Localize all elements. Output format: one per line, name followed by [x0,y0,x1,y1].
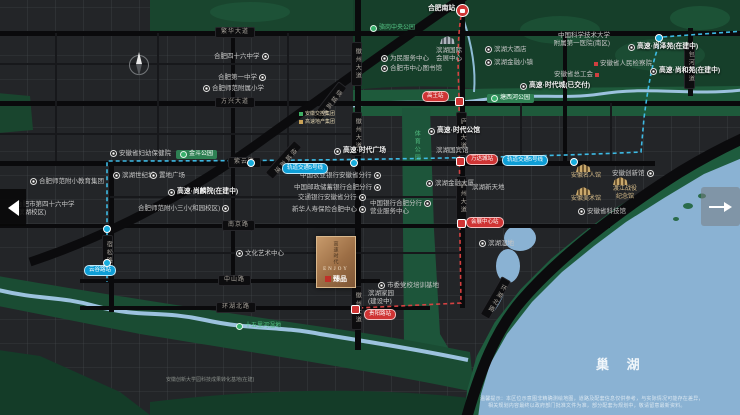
metro-station-icon [103,225,111,233]
poi-normal-primary-edu-group: 合肥师范附小教育集团 [30,178,104,186]
poi-psbc-bank-hefei-branch: 中国邮政储蓄银行合肥分行 [294,184,381,192]
road-huanhu-north-road: 环湖北路 [216,302,256,313]
poi-dujiang-campaign-memorial: 渡江战役纪念馆 [608,186,642,201]
poi-binhu-hotel: 滨湖大酒店 [485,46,527,54]
hefei-south-railway-icon [456,4,469,17]
poi-maternity-hospital: 安徽省妇幼保健院 [110,150,171,158]
location-map: 高速时代 ENJOY 臻品 温馨提示：本区位示意图非精确测绘地图，道路及配套信息… [0,0,740,415]
park-tangxihe-park: 塘西河公园 [487,94,534,103]
poi-provincial-trade-union: 安徽省总工会 [554,71,599,79]
poi-xinhua-insurance-center: 新华人寿保险合肥中心 [292,206,366,214]
metro-station-icon [247,159,255,167]
poi-hefei-no1-high-school: 合肥第一中学 [218,74,266,82]
poi-hefei-south-station: 合肥南站 [428,5,455,13]
road-ziyun-road: 紫云路 [228,157,261,168]
poi-dot-icon [334,148,341,155]
poi-dot-icon [520,83,527,90]
poi-normal-affiliated-primary: 合肥师范附属小学 [203,85,264,93]
rail-station-icon [455,97,464,106]
poi-service-center: 为民服务中心 [381,55,429,63]
park-dot-icon [180,151,187,158]
park-sports-park: 体育公园 [412,130,419,162]
poi-dot-icon [424,200,431,207]
poi-dot-icon [262,53,269,60]
road-fanhua-avenue: 繁华大道 [215,27,255,38]
plaque-en-text: ENJOY [323,267,349,272]
metro-station-wandacheng: 万达城站 [466,154,498,165]
poi-dot-icon [428,128,435,135]
poi-dot-icon [647,170,654,177]
poi-boc-service-center: 营业服务中心 [370,208,409,216]
plaque-sub-text: 臻品 [325,274,347,284]
poi-dot-icon [374,172,381,179]
poi-dot-icon [374,184,381,191]
red-seal-icon [325,276,331,282]
metro-station-gaowang: 高王站 [422,91,449,102]
plaque-cn-text: 高速时代 [333,241,340,265]
poi-dot-icon [222,205,229,212]
red-square-icon [595,73,599,77]
metro-station-guiyanglu: 贵阳路站 [364,309,396,320]
left-arrow-icon [8,200,19,216]
road-fangxing-avenue: 方兴大道 [215,97,255,108]
poi-dot-icon [110,150,117,157]
road-zhongshan-road: 中山路 [218,275,251,286]
logo-anhui-jiaokong-group: 安徽交控集团 [299,111,335,117]
poi-dot-icon [628,44,635,51]
poi-dot-icon [381,65,388,72]
red-square-icon [594,62,598,66]
poi-dot-icon [150,172,157,179]
poi-dot-icon [299,112,303,116]
poi-dot-icon [426,180,433,187]
poi-dot-icon [485,46,492,53]
poi-dot-icon [485,59,492,66]
poi-dot-icon [578,208,585,215]
poi-dot-icon [168,189,175,196]
poi-anhui-science-museum: 安徽省科技馆 [578,208,626,216]
park-shiwulihe-wetland: 十五里河湿地 [236,323,281,330]
poi-city-library: 合肥市中心图书馆 [381,65,442,73]
poi-anhui-art-museum: 安徽美术馆 [571,196,601,203]
poi-culture-art-center: 文化艺术中心 [236,250,284,258]
poi-hefei-no46-middle-school: 合肥四十六中学 [214,53,269,61]
poi-finance-town: 滨湖金融小镇 [485,59,533,67]
poi-gaosu-shangze-court: 高速·尚泽苑(在建中) [628,43,698,51]
rail-station-icon [351,305,360,314]
prev-map-button[interactable] [0,189,26,226]
metro-line5-badge-2: 轨道交通5号线 [502,155,548,166]
poi-dot-icon [650,68,657,75]
poi-dot-icon [259,74,266,81]
poi-binhu-wetland: 滨湖湿地 [479,240,514,248]
poi-gaosu-times-mansion: 高速·时代公馆 [428,127,480,135]
park-luogang-central-park: 骆岗中央公园 [370,25,415,32]
poi-dot-icon [299,120,303,124]
poi-binhu-xintiandi: 滨湖新天地 [472,184,505,192]
poi-dot-icon [113,172,120,179]
poi-gaosu-shanghe-court: 高速·尚和苑(在建中) [650,67,720,75]
park-jindou-park: 金斗公园 [176,150,217,159]
poi-dot-icon [236,250,243,257]
metro-station-icon [103,259,111,267]
park-dot-icon [236,323,243,330]
poi-gaosu-times-plaza: 高速·时代广场 [334,147,386,155]
metro-line5-badge-1: 轨道交通5号线 [282,163,328,174]
road-nanjing-road: 南京路 [222,220,255,231]
right-arrowhead-icon [724,202,732,212]
poi-zhidi-plaza: 置地广场 [150,172,185,180]
lake-title-chaohu: 巢 湖 [596,357,647,373]
metro-station-icon [655,34,663,42]
park-dot-icon [491,95,498,102]
metro-station-huizhanzhongxin: 会展中心站 [466,217,504,228]
rail-station-icon [456,157,465,166]
poi-anhui-innovation-hall: 安徽创新馆 [612,170,654,178]
poi-dot-icon [203,85,210,92]
poi-dot-icon [378,282,385,289]
poi-binhu-finance-tower: 滨湖金融大厦 [426,180,474,188]
poi-tech-transfer-base: 安徽创新大学园科技成果转化基地(在建) [166,377,254,383]
poi-bocom-bank-anhui-branch: 交通银行安徽省分行 [298,194,366,202]
poi-binhu-century-city: 滨湖世纪城 [113,172,155,180]
poi-state-guest-hotel: 滨湖国宾馆 [436,147,469,155]
poi-gaosu-shanglin-court: 高速·尚麟院(在建中) [168,188,238,196]
poi-dot-icon [30,178,37,185]
poi-boc-bank-hefei-branch: 中国银行合肥分行 [370,200,431,208]
metro-station-yungulu: 云谷路站 [84,265,116,276]
compass-icon [128,50,150,80]
poi-party-school: 市委党校培训基地 [378,282,439,290]
metro-station-icon [570,158,578,166]
poi-dot-icon [359,206,366,213]
poi-provincial-procuratorate: 安徽省人民检察院 [594,60,652,68]
right-arrow-icon [709,206,725,208]
disclaimer-line-1: 温馨提示：本区位示意图非精确测绘地图，道路及配套信息仅供参考，与实际情况可能存在… [480,396,704,402]
poi-ustc-first-hospital: 中国科学技术大学附属第一医院(南区) [550,32,610,48]
road-huizhou-avenue-1: 徽州大道 [351,42,362,86]
poi-binhu-home: 滨湖家园(建设中) [368,290,428,306]
poi-normal-third-primary: 合肥师范附小三小(和园校区) [138,205,229,213]
disclaimer-line-2: 相关规划内容最终以政府部门批准文件为准，部分配套为规划中，敬请留意最新资料。 [488,403,686,409]
poi-dot-icon [479,240,486,247]
metro-station-icon [350,159,358,167]
project-logo-plaque: 高速时代 ENJOY 臻品 [316,236,356,288]
logo-gaosu-real-estate-group: 高速地产集团 [299,119,335,125]
next-map-button[interactable] [701,187,740,226]
rail-station-icon [457,219,466,228]
poi-gaosu-times-city: 高速·时代城(已交付) [520,82,590,90]
poi-anhui-celebrity-hall: 安徽名人馆 [571,173,601,180]
poi-dot-icon [381,55,388,62]
poi-dot-icon [359,194,366,201]
park-dot-icon [370,25,377,32]
